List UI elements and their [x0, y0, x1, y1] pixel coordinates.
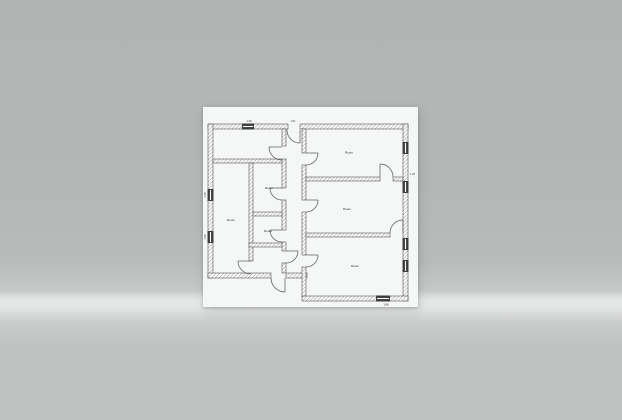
door-swing	[286, 251, 298, 263]
wall-segment	[306, 233, 390, 237]
wall-segment	[282, 200, 286, 230]
window-symbol	[403, 181, 409, 193]
door-swing	[306, 153, 318, 165]
room-label: Room	[264, 229, 273, 233]
dimension-label: 1.26	[246, 119, 252, 123]
window-symbol	[403, 238, 409, 250]
wall-segment	[208, 273, 271, 278]
walls	[208, 124, 408, 301]
wall-segment	[300, 124, 408, 129]
room-label: Room	[227, 218, 236, 222]
wall-segment	[213, 159, 282, 163]
dimension-label: 1.26	[410, 172, 416, 176]
floor-plan-sheet: Room Room Room Room Room Room 1.26 1.01 …	[203, 107, 418, 307]
wall-segment	[393, 177, 403, 181]
wall-segment	[306, 177, 380, 181]
dimension-label: 1.01	[290, 119, 296, 123]
dimension-label: 1.88	[383, 303, 389, 307]
doors	[238, 130, 403, 292]
entrance-door-swing	[287, 130, 300, 143]
door-swing	[238, 261, 251, 274]
window-symbol	[403, 142, 409, 154]
window-symbol	[208, 231, 214, 243]
room-label: Room	[351, 264, 360, 268]
wall-segment	[302, 267, 306, 296]
wall-segment	[282, 242, 286, 251]
wall-segment	[302, 129, 306, 153]
window-symbol	[242, 124, 254, 130]
door-swing	[306, 200, 318, 212]
door-swing	[390, 220, 403, 233]
wall-segment	[253, 212, 282, 216]
dimension-label: 1.26	[203, 234, 207, 240]
wall-segment	[282, 129, 286, 146]
window-symbol	[376, 296, 390, 302]
wall-segment	[302, 296, 408, 301]
room-label: Room	[345, 151, 354, 155]
labels: Room Room Room Room Room Room 1.26 1.01 …	[203, 119, 416, 307]
wall-segment	[282, 263, 286, 273]
wall-segment	[249, 243, 282, 247]
window-symbol	[208, 189, 214, 201]
door-swing	[269, 147, 282, 160]
door-swing	[306, 255, 318, 267]
studio-backdrop: Room Room Room Room Room Room 1.26 1.01 …	[0, 0, 622, 420]
door-swing	[380, 164, 393, 177]
exterior-door-swing	[271, 278, 285, 292]
wall-segment	[282, 159, 286, 188]
room-label: Room	[265, 186, 274, 190]
dimension-label: 1.26	[203, 192, 207, 198]
window-symbol	[403, 260, 409, 272]
wall-segment	[302, 212, 306, 255]
room-label: Room	[343, 207, 352, 211]
wall-segment	[302, 165, 306, 200]
floor-plan-drawing: Room Room Room Room Room Room 1.26 1.01 …	[203, 107, 418, 307]
